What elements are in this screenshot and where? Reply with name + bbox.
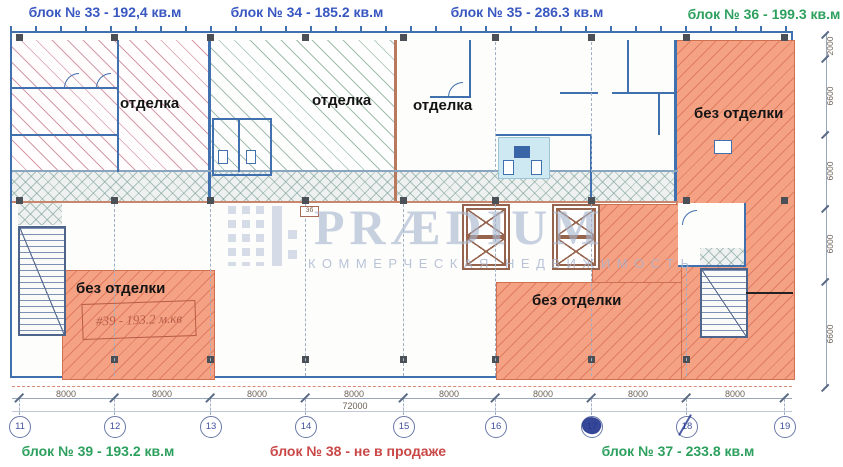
wall-divider-33-34 bbox=[208, 40, 211, 203]
grid-bubble-13: 13 bbox=[200, 416, 222, 438]
block-38-status-label: без отделки bbox=[532, 292, 621, 309]
grid-bubble-16: 16 bbox=[485, 416, 507, 438]
block-33-area bbox=[12, 40, 210, 172]
grid-line bbox=[591, 42, 592, 172]
column bbox=[683, 34, 690, 41]
corridor-wall-top bbox=[12, 170, 678, 172]
block-35-partition-v2 bbox=[627, 40, 629, 93]
dim-tick bbox=[821, 384, 829, 392]
bay-dimension: 8000 bbox=[237, 389, 277, 399]
toilet-fixture bbox=[531, 160, 542, 175]
toilet-fixture bbox=[503, 160, 514, 175]
bay-dimension: 8000 bbox=[46, 389, 86, 399]
grid-line bbox=[305, 204, 306, 376]
unit-39-note-text: #39 - 193.2 м.кв bbox=[96, 311, 183, 330]
block-35-partition-h4 bbox=[496, 134, 592, 136]
vertical-dimension: 6000 bbox=[825, 153, 835, 189]
column bbox=[588, 34, 595, 41]
grid-bubble-15: 15 bbox=[393, 416, 415, 438]
column bbox=[207, 34, 214, 41]
wall-divider-35-36 bbox=[674, 40, 677, 203]
bay-dimension: 8000 bbox=[715, 389, 755, 399]
vertical-dimension: 6600 bbox=[825, 78, 835, 114]
site-boundary-dashed-line bbox=[12, 386, 792, 387]
block-33-partition-h2 bbox=[12, 134, 118, 136]
column bbox=[111, 197, 118, 204]
grid-line bbox=[495, 42, 496, 172]
footer-label-block-39: блок № 39 - 193.2 кв.м bbox=[12, 443, 184, 459]
column bbox=[492, 34, 499, 41]
dimension-line-total bbox=[12, 411, 792, 412]
building-icon bbox=[514, 146, 530, 158]
block-33-status-label: отделка bbox=[120, 95, 179, 112]
stairwell-right bbox=[700, 268, 748, 338]
bay-dimension: 8000 bbox=[334, 389, 374, 399]
footer-label-block-37: блок № 37 - 233.8 кв.м bbox=[592, 443, 764, 459]
header-label-block-36: блок № 36 - 199.3 кв.м bbox=[686, 6, 842, 22]
floor-plan-screenshot: блок № 33 - 192,4 кв.м блок № 34 - 185.2… bbox=[0, 0, 843, 467]
bubble-leader bbox=[305, 399, 306, 415]
column bbox=[111, 34, 118, 41]
grid-bubble-12: 12 bbox=[104, 416, 126, 438]
watermark-subtitle: КОММЕРЧЕСКАЯ НЕДВИЖИМОСТЬ bbox=[308, 256, 696, 271]
total-dimension: 72000 bbox=[330, 401, 380, 411]
column bbox=[302, 197, 309, 204]
bubble-leader bbox=[114, 399, 115, 415]
stair-landing-left bbox=[18, 203, 62, 225]
header-label-block-33: блок № 33 - 192,4 кв.м bbox=[20, 4, 190, 20]
praedium-logo-bar bbox=[272, 206, 282, 266]
praedium-logo-square bbox=[288, 250, 297, 259]
grid-line bbox=[210, 204, 211, 376]
bay-dimension: 8000 bbox=[523, 389, 563, 399]
grid-line bbox=[686, 268, 687, 376]
block-33-partition-v bbox=[117, 40, 119, 172]
block-34-status-label: отделка bbox=[312, 92, 371, 109]
column bbox=[781, 34, 788, 41]
watermark-title: PRÆDIUM bbox=[314, 198, 605, 256]
bay-dimension: 8000 bbox=[142, 389, 182, 399]
block-34-wc-room bbox=[212, 118, 272, 176]
vertical-dimension: 6000 bbox=[825, 226, 835, 262]
section-line bbox=[746, 292, 793, 294]
toilet-fixture bbox=[246, 150, 256, 164]
block-35-partition-v1 bbox=[469, 40, 471, 98]
grid-bubble-19: 19 bbox=[774, 416, 796, 438]
column bbox=[302, 34, 309, 41]
bubble-leader bbox=[495, 399, 496, 415]
stairwell-left bbox=[18, 226, 66, 336]
column bbox=[683, 197, 690, 204]
block-39-status-label: без отделки bbox=[76, 280, 165, 297]
column bbox=[781, 197, 788, 204]
bubble-leader bbox=[686, 399, 687, 415]
bubble-leader bbox=[19, 399, 20, 415]
right-lobby-wall-v bbox=[744, 203, 746, 267]
bubble-leader bbox=[784, 399, 785, 415]
block-35-partition-h3 bbox=[612, 92, 676, 94]
grid-bubble-11: 11 bbox=[9, 416, 31, 438]
block-35-partition-h2 bbox=[560, 92, 598, 94]
dim-tick bbox=[821, 278, 829, 286]
stair-landing-right bbox=[700, 248, 744, 266]
footer-label-block-38: блок № 38 - не в продаже bbox=[258, 443, 458, 459]
column bbox=[16, 34, 23, 41]
vertical-dimension: 2000 bbox=[825, 28, 835, 64]
unit-39-note-box: #39 - 193.2 м.кв bbox=[81, 300, 196, 340]
praedium-logo-square bbox=[288, 230, 297, 239]
block-36-fixture bbox=[714, 140, 732, 154]
bubble-leader bbox=[591, 399, 592, 415]
column bbox=[207, 197, 214, 204]
header-label-block-34: блок № 34 - 185.2 кв.м bbox=[222, 4, 392, 20]
block-35-status-label: отделка bbox=[413, 97, 472, 114]
header-label-block-35: блок № 35 - 286.3 кв.м bbox=[446, 4, 608, 20]
dim-tick bbox=[821, 205, 829, 213]
block-36-status-label: без отделки bbox=[694, 105, 783, 122]
bubble-leader bbox=[210, 399, 211, 415]
block-35-partition-v4 bbox=[658, 92, 660, 135]
toilet-fixture bbox=[218, 150, 228, 164]
facade-mullions bbox=[10, 26, 793, 32]
dim-tick bbox=[821, 131, 829, 139]
grid-bubble-14: 14 bbox=[295, 416, 317, 438]
vertical-dimension: 6600 bbox=[825, 316, 835, 352]
bay-dimension: 8000 bbox=[429, 389, 469, 399]
praedium-logo-icon bbox=[228, 206, 268, 266]
bay-dimension: 8000 bbox=[618, 389, 658, 399]
column bbox=[400, 34, 407, 41]
column bbox=[16, 197, 23, 204]
wall-divider-34-35 bbox=[394, 40, 397, 203]
bubble-leader bbox=[403, 399, 404, 415]
block-34-wc-divider bbox=[238, 118, 240, 172]
